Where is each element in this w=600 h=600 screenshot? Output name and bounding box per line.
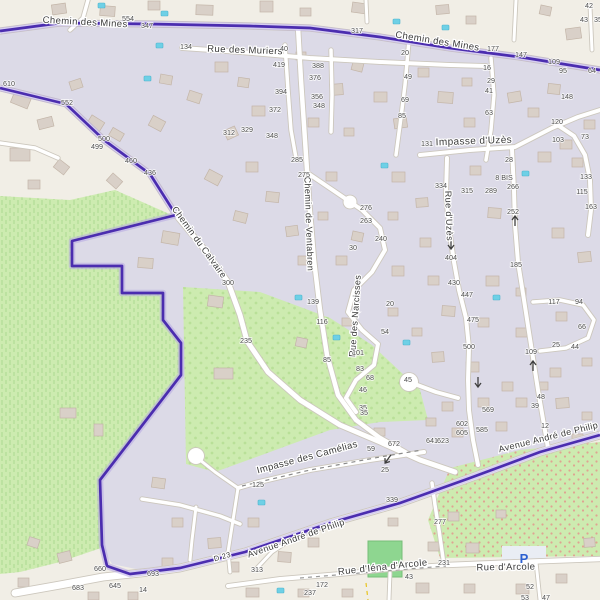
house-number: 275 [298,170,310,179]
map-canvas[interactable]: P Chemin des MinesChemin des MinesRue de… [0,0,600,600]
building [496,422,507,431]
building [159,74,172,85]
house-number: 447 [461,290,473,299]
house-number: 289 [485,186,497,195]
house-number: 14 [139,585,147,594]
building [432,352,445,363]
house-number: 115 [576,187,587,196]
building [552,228,564,238]
house-number: 683 [72,583,84,592]
swimming-pool [161,11,168,16]
house-number: 66 [578,322,586,331]
street-label: Rue d'Arcole [476,561,535,573]
building [538,152,551,162]
swimming-pool [493,295,500,300]
building [438,91,454,103]
house-number: 148 [561,92,573,101]
house-number: 266 [507,182,519,191]
building [486,276,499,286]
house-number: 276 [360,203,372,212]
road-top-stub-4 [590,6,592,50]
house-number: 404 [445,253,457,262]
road-top-stub-3 [514,0,516,40]
building [172,518,183,527]
swimming-pool [144,76,151,81]
house-number: 285 [291,155,303,164]
building [442,402,453,411]
building [151,477,165,489]
house-number: 69 [401,95,409,104]
house-number: 312 [223,128,235,137]
house-number: 339 [386,495,398,504]
building [252,106,265,116]
house-number: 85 [323,355,331,364]
swimming-pool [381,163,388,168]
building [516,328,527,337]
swimming-pool [258,500,265,505]
building [308,538,319,547]
building [351,231,364,242]
house-number: 64 [588,66,596,75]
house-number: 139 [307,297,319,306]
swimming-pool [295,295,302,300]
building [300,8,311,16]
house-number: 660 [94,564,106,573]
house-number: 117 [548,297,559,306]
road-top-stub-2 [366,0,367,22]
house-number: 44 [571,342,579,351]
building [496,510,506,518]
building [412,328,422,336]
building [285,225,298,237]
house-number: 348 [313,101,325,110]
house-number: 235 [240,336,252,345]
building [374,92,387,102]
house-number: 16 [483,63,491,72]
building [260,1,273,12]
building [246,162,258,172]
house-number: 41 [485,86,493,95]
building [28,180,40,189]
house-number: 68 [366,373,374,382]
building [388,518,398,526]
house-number: 430 [448,278,460,287]
house-number: 25 [552,340,560,349]
house-number: 101 [352,348,364,357]
building [344,128,354,136]
building [266,191,280,202]
house-number: 348 [266,131,278,140]
house-number: 231 [438,558,450,567]
culdesac [188,448,204,464]
house-number: 347 [141,21,153,30]
house-number: 394 [275,87,287,96]
house-number: 54 [381,327,389,336]
swimming-pool [333,335,340,340]
house-number: 460 [125,156,137,165]
house-number: 252 [507,207,519,216]
house-number: 419 [273,60,285,69]
house-number: 8 BIS [495,173,513,182]
building [237,77,249,87]
house-number: 47 [542,593,550,600]
house-number: 645 [109,581,121,590]
house-number: 48 [537,392,545,401]
building [466,16,476,24]
building [342,589,353,597]
building [478,318,489,327]
house-number: 49 [404,72,412,81]
house-number: 602 [456,419,468,428]
house-number: 163 [585,202,597,211]
building [556,312,567,321]
building [392,266,404,276]
building [388,212,398,220]
house-number: 63 [485,108,493,117]
building [442,306,456,317]
building [207,295,223,308]
house-number: 475 [467,315,479,324]
house-number: 46 [359,385,367,394]
house-number: 95 [559,66,567,75]
building [528,108,539,117]
house-number: 125 [252,480,264,489]
swimming-pool [522,171,529,176]
building [539,5,552,16]
building [336,256,347,265]
house-number: 103 [552,135,564,144]
building [470,166,481,175]
house-number: 53 [521,593,529,600]
house-number: 83 [356,364,364,373]
house-number: 109 [548,57,560,66]
house-number: 237 [304,588,316,597]
house-number: 35 [360,408,368,417]
building [550,368,561,377]
house-number: 376 [309,73,321,82]
house-number: 693 [147,569,159,578]
building [246,588,259,597]
house-number: 12 [541,421,549,430]
building [488,208,502,219]
building [464,584,475,593]
house-number: 85 [398,111,406,120]
building [248,518,259,527]
house-number: 133 [580,172,592,181]
road-road-388 [331,50,332,132]
osm-map[interactable]: P Chemin des MinesChemin des MinesRue de… [0,0,600,600]
house-number: 552 [61,98,73,107]
house-number: 605 [456,428,468,437]
road-stub-south-1 [389,573,390,600]
building [502,382,513,391]
building [420,238,431,247]
house-number: 45 [404,375,412,384]
house-number: 59 [367,444,375,453]
building [464,118,475,127]
building [138,257,154,268]
house-number: 372 [269,105,281,114]
building [462,78,472,86]
building [428,542,439,551]
house-number: 315 [461,186,473,195]
house-number: 20 [386,299,394,308]
house-number: 334 [435,181,447,190]
swimming-pool [442,25,449,30]
house-number: 30 [349,243,357,252]
house-number: 263 [360,216,372,225]
house-number: 116 [316,317,327,326]
building [215,62,228,72]
house-number: 500 [463,342,475,351]
house-number: 39 [531,401,539,410]
building [416,583,429,593]
house-number: 94 [575,297,583,306]
building [60,408,76,418]
house-number: 25 [381,465,389,474]
house-number: 356 [311,92,323,101]
house-number: 120 [551,117,563,126]
swimming-pool [393,19,400,24]
house-number: 20 [401,48,409,57]
swimming-pool [156,43,163,48]
house-number: 35 [594,15,600,24]
street-label: Rue d'Uzès [443,191,455,242]
building [128,592,138,600]
house-number: 569 [482,405,494,414]
house-number: 177 [487,44,499,53]
building [582,358,592,366]
building [584,538,596,548]
house-number: 313 [251,565,263,574]
building [416,198,429,208]
building [418,68,429,77]
building [466,543,479,553]
house-number: 554 [122,14,134,23]
building [308,118,319,127]
building [565,27,581,40]
swimming-pool [403,340,410,345]
building [426,418,436,426]
building [18,578,29,587]
house-number: 131 [421,139,433,148]
swimming-pool [277,588,284,593]
building [208,538,222,549]
building [278,552,292,563]
house-number: 277 [434,517,446,526]
house-number: 29 [487,76,495,85]
building [148,1,160,10]
building [556,398,570,409]
building [51,3,66,15]
building [318,212,328,220]
building [428,276,439,285]
building [196,5,213,16]
building [161,231,180,246]
building [388,308,398,316]
house-number: 499 [91,142,103,151]
building [572,158,583,167]
house-number: 623 [437,436,449,445]
building [556,574,567,583]
building [507,91,522,103]
building [584,120,595,129]
house-number: 147 [515,50,527,59]
building [326,172,337,181]
house-number: 388 [312,61,324,70]
house-number: 43 [580,15,588,24]
house-number: 672 [388,439,400,448]
house-number: 436 [144,168,156,177]
building [94,424,103,436]
house-number: 172 [316,580,328,589]
building [295,337,308,348]
building [578,251,592,262]
house-number: 43 [405,572,413,581]
house-number: 73 [581,132,589,141]
building [10,148,30,161]
house-number: 300 [222,278,234,287]
house-number: 329 [241,125,253,134]
building [436,4,450,14]
building [582,412,592,420]
building [516,398,527,407]
culdesac [344,196,357,209]
building [88,592,99,600]
house-number: 42 [585,1,593,10]
building [392,172,405,182]
house-number: 109 [525,347,537,356]
house-number: 317 [351,26,363,35]
building [548,83,561,94]
house-number: 585 [476,425,488,434]
building [448,512,459,521]
swimming-pool [98,3,105,8]
house-number: 185 [510,260,522,269]
house-number: 610 [3,79,15,88]
building [214,368,233,379]
house-number: 52 [526,582,534,591]
house-number: 134 [180,42,192,51]
house-number: 40 [280,44,288,53]
house-number: 28 [505,155,513,164]
house-number: 240 [375,234,387,243]
